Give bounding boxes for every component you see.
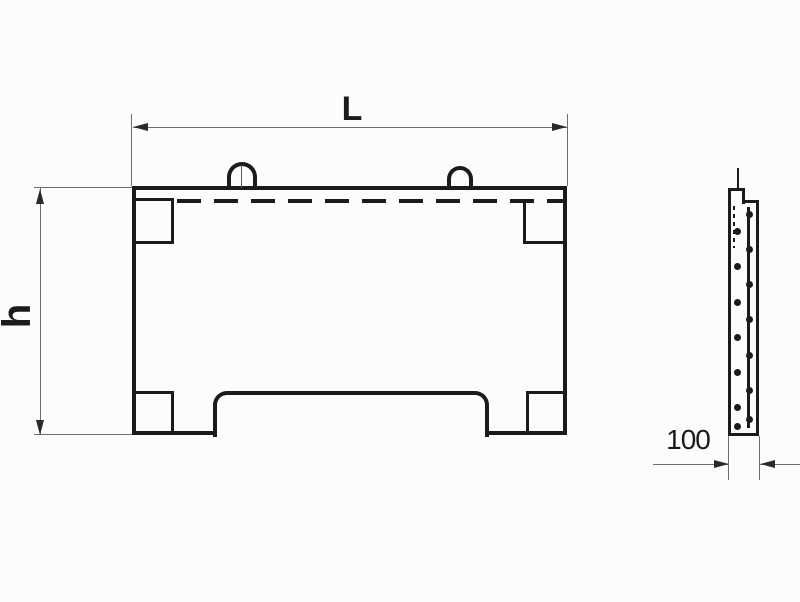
corner-notch-top-right xyxy=(523,201,567,244)
dimension-L-arrow-left xyxy=(133,123,148,131)
dimension-100-arrow-left xyxy=(714,460,729,468)
dimension-100-label: 100 xyxy=(662,426,714,454)
rebar-dot xyxy=(734,404,741,411)
rebar-dot xyxy=(746,246,753,253)
rebar-dot xyxy=(734,369,741,376)
dimension-L-extension-left xyxy=(131,114,132,186)
lifting-loop-left xyxy=(227,162,257,190)
lifting-loop-right xyxy=(447,166,473,190)
rebar-dot xyxy=(746,316,753,323)
rebar-dot xyxy=(746,211,753,218)
dimension-100-extension-left xyxy=(728,436,729,480)
dimension-h-label: h xyxy=(0,294,37,338)
dimension-h-arrow-top xyxy=(36,189,44,204)
rebar-dot xyxy=(746,352,753,359)
hidden-rebar-dashed-line xyxy=(177,199,563,203)
dimension-h-extension-bottom xyxy=(34,434,132,435)
rebar-dot xyxy=(746,281,753,288)
side-lifting-loop-edge xyxy=(737,168,739,189)
corner-notch-bottom-left xyxy=(132,391,174,435)
corner-notch-bottom-right xyxy=(526,391,567,435)
panel-side-top-step xyxy=(728,188,745,204)
dimension-L-arrow-right xyxy=(552,123,567,131)
rebar-dot xyxy=(734,299,741,306)
dimension-h-extension-top xyxy=(34,187,132,188)
side-hidden-notch-dashed-line xyxy=(733,206,735,248)
technical-drawing-canvas: L h 100 xyxy=(0,0,800,602)
rebar-dot xyxy=(734,334,741,341)
dimension-h-arrow-bottom xyxy=(36,420,44,435)
corner-notch-top-left xyxy=(132,198,174,244)
dimension-L-extension-right xyxy=(567,114,568,186)
dimension-100-extension-right xyxy=(759,436,760,480)
lifting-loop-left-centerline xyxy=(241,165,242,188)
rebar-dot xyxy=(746,387,753,394)
bottom-recess-cutout xyxy=(213,391,489,437)
rebar-dot xyxy=(734,423,741,430)
rebar-dot xyxy=(746,416,753,423)
rebar-dot xyxy=(734,263,741,270)
dimension-100-arrow-right xyxy=(760,460,775,468)
dimension-h-line xyxy=(40,188,41,435)
rebar-dot xyxy=(734,228,741,235)
dimension-L-label: L xyxy=(330,92,374,126)
